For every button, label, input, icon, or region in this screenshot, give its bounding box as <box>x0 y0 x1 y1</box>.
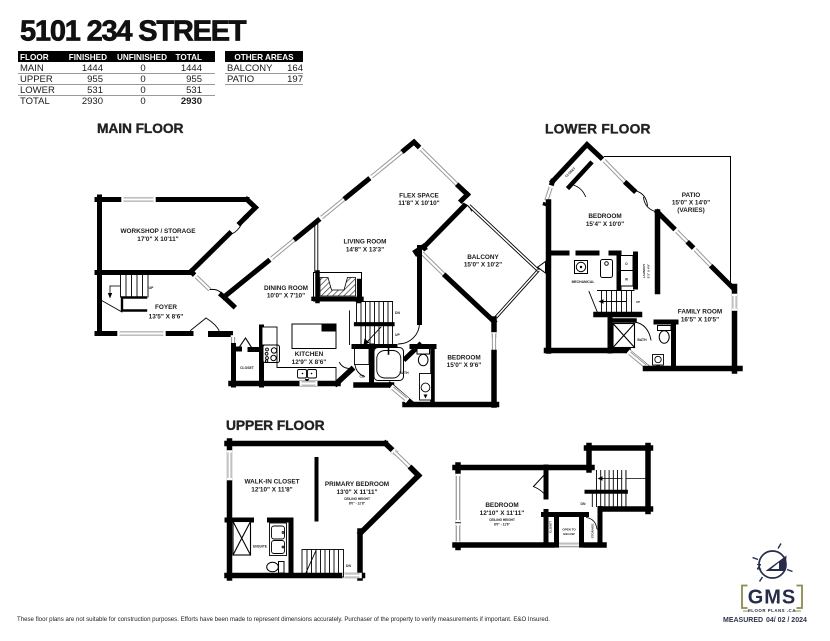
svg-text:5101 234 STREET: 5101 234 STREET <box>20 16 247 48</box>
svg-text:UNFINISHED: UNFINISHED <box>117 53 167 62</box>
svg-text:0: 0 <box>140 74 145 85</box>
svg-text:CLOSET: CLOSET <box>240 366 255 370</box>
svg-text:BALCONY: BALCONY <box>227 63 273 74</box>
svg-text:1444: 1444 <box>181 63 202 74</box>
svg-text:2930: 2930 <box>82 96 103 107</box>
svg-text:UPPER FLOOR: UPPER FLOOR <box>226 418 325 433</box>
svg-text:15'0" X 10'2": 15'0" X 10'2" <box>464 262 502 269</box>
svg-text:DN: DN <box>346 564 351 568</box>
svg-text:15'4" X 10'0": 15'4" X 10'0" <box>586 221 624 228</box>
svg-text:FLOOR: FLOOR <box>20 53 49 62</box>
svg-text:ENSUITE: ENSUITE <box>253 545 267 549</box>
svg-text:MAIN FLOOR: MAIN FLOOR <box>97 121 184 136</box>
svg-text:04/ 02 / 2024: 04/ 02 / 2024 <box>766 617 807 624</box>
svg-text:FLEX SPACE: FLEX SPACE <box>399 193 439 200</box>
svg-text:PATIO: PATIO <box>227 74 254 85</box>
svg-text:11'8" X 10'10": 11'8" X 10'10" <box>398 200 439 207</box>
svg-text:BATH: BATH <box>399 371 409 375</box>
svg-text:z: z <box>757 562 762 573</box>
svg-text:5'3" X 4'9": 5'3" X 4'9" <box>647 263 651 278</box>
svg-text:2930: 2930 <box>181 96 202 107</box>
svg-text:MEASURED: MEASURED <box>723 617 763 624</box>
svg-text:WALK-IN CLOSET: WALK-IN CLOSET <box>244 479 299 486</box>
svg-text:16'5" X 10'5": 16'5" X 10'5" <box>681 317 719 324</box>
svg-text:DN: DN <box>581 502 586 506</box>
svg-text:BATH: BATH <box>637 338 647 342</box>
svg-text:8'0" - 11'6": 8'0" - 11'6" <box>494 523 511 527</box>
svg-text:FINISHED: FINISHED <box>69 53 107 62</box>
svg-text:CLOSET: CLOSET <box>549 521 553 533</box>
svg-text:UP: UP <box>636 300 640 304</box>
svg-text:GMS: GMS <box>748 587 797 609</box>
svg-text:DN: DN <box>395 311 400 315</box>
svg-text:UPPER: UPPER <box>20 74 53 85</box>
svg-text:531: 531 <box>87 85 103 96</box>
svg-text:15'0" X 9'6": 15'0" X 9'6" <box>447 362 482 369</box>
svg-text:BALCONY: BALCONY <box>467 254 499 261</box>
svg-text:PATIO: PATIO <box>682 192 701 199</box>
svg-text:MECHANICAL: MECHANICAL <box>572 280 595 284</box>
svg-text:FLOOR PLANS .CA: FLOOR PLANS .CA <box>748 608 796 613</box>
svg-text:DINING ROOM: DINING ROOM <box>264 285 308 292</box>
svg-text:UP: UP <box>149 286 154 290</box>
svg-text:12'9" X 8'6": 12'9" X 8'6" <box>292 359 327 366</box>
svg-text:FOYER: FOYER <box>155 304 177 311</box>
svg-text:CB: CB <box>360 375 365 379</box>
svg-text:13'0" X 11'11": 13'0" X 11'11" <box>336 489 377 496</box>
svg-text:W: W <box>625 278 628 282</box>
svg-text:TOTAL: TOTAL <box>20 96 50 107</box>
svg-text:PRIMARY BEDROOM: PRIMARY BEDROOM <box>325 481 389 488</box>
svg-text:197: 197 <box>287 74 303 85</box>
svg-text:164: 164 <box>287 63 303 74</box>
svg-text:CEILING HEIGHT: CEILING HEIGHT <box>489 518 515 522</box>
svg-text:17'0" X 10'11": 17'0" X 10'11" <box>137 236 178 243</box>
svg-text:WORKSHOP / STORAGE: WORKSHOP / STORAGE <box>120 228 196 235</box>
svg-text:0: 0 <box>140 85 145 96</box>
svg-text:12'10" X 11'11": 12'10" X 11'11" <box>480 510 525 517</box>
svg-text:13'5" X 8'6": 13'5" X 8'6" <box>149 314 184 321</box>
svg-text:BEDROOM: BEDROOM <box>447 355 480 362</box>
svg-text:LOWER: LOWER <box>20 85 55 96</box>
svg-text:955: 955 <box>186 74 202 85</box>
svg-text:955: 955 <box>87 74 103 85</box>
svg-text:0: 0 <box>140 63 145 74</box>
svg-text:0: 0 <box>140 96 145 107</box>
svg-text:BEDROOM: BEDROOM <box>485 502 518 509</box>
svg-text:UP: UP <box>395 333 400 337</box>
svg-text:531: 531 <box>186 85 202 96</box>
svg-text:LOWER FLOOR: LOWER FLOOR <box>545 122 651 137</box>
svg-text:14'8" X 13'3": 14'8" X 13'3" <box>346 247 384 254</box>
svg-text:FAMILY ROOM: FAMILY ROOM <box>678 309 722 316</box>
svg-text:MAIN: MAIN <box>20 63 44 74</box>
svg-text:1444: 1444 <box>82 63 103 74</box>
svg-text:STORAGE: STORAGE <box>591 524 595 539</box>
svg-text:LAUNDRY: LAUNDRY <box>642 264 646 279</box>
svg-text:These floor plans are not suit: These floor plans are not suitable for c… <box>17 616 550 623</box>
svg-text:KITCHEN: KITCHEN <box>295 351 324 358</box>
svg-text:(VARIES): (VARIES) <box>677 207 705 214</box>
svg-text:CEILING HEIGHT: CEILING HEIGHT <box>344 497 370 501</box>
svg-text:OPEN TO: OPEN TO <box>562 528 576 532</box>
svg-text:10'0" X 7'10": 10'0" X 7'10" <box>267 293 305 300</box>
svg-text:TOTAL: TOTAL <box>175 53 202 62</box>
svg-text:8'0" - 12'8": 8'0" - 12'8" <box>349 502 366 506</box>
svg-text:BEDROOM: BEDROOM <box>588 213 621 220</box>
svg-text:BELOW: BELOW <box>563 532 574 536</box>
svg-text:OTHER AREAS: OTHER AREAS <box>234 53 294 62</box>
svg-text:15'0" X 14'0": 15'0" X 14'0" <box>672 200 710 207</box>
svg-text:LIVING ROOM: LIVING ROOM <box>344 239 387 246</box>
svg-text:12'10" X 11'8": 12'10" X 11'8" <box>251 487 292 494</box>
